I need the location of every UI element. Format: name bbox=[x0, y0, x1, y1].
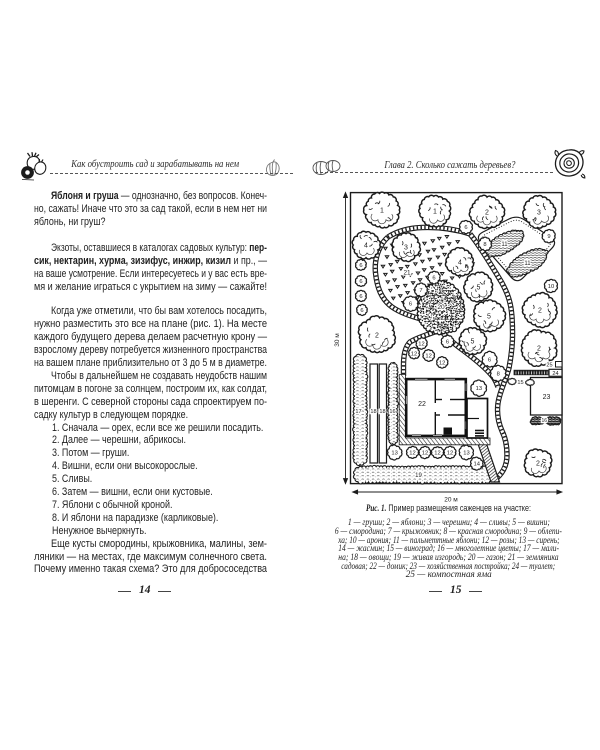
svg-text:6: 6 bbox=[488, 358, 491, 364]
svg-text:6: 6 bbox=[409, 302, 412, 308]
svg-text:12: 12 bbox=[422, 451, 428, 457]
svg-text:4: 4 bbox=[458, 259, 462, 266]
svg-text:8: 8 bbox=[483, 242, 486, 248]
svg-text:23: 23 bbox=[543, 394, 551, 401]
svg-text:1: 1 bbox=[433, 208, 437, 215]
svg-text:16: 16 bbox=[389, 409, 395, 415]
svg-text:15: 15 bbox=[517, 380, 523, 386]
svg-text:6: 6 bbox=[359, 263, 362, 269]
svg-text:12: 12 bbox=[411, 351, 417, 357]
svg-text:12: 12 bbox=[434, 451, 440, 457]
svg-text:16: 16 bbox=[542, 418, 548, 424]
svg-text:2: 2 bbox=[375, 332, 379, 339]
svg-text:12: 12 bbox=[439, 361, 445, 367]
svg-text:6: 6 bbox=[432, 276, 435, 282]
svg-text:6: 6 bbox=[464, 225, 467, 231]
svg-text:2: 2 bbox=[536, 460, 540, 467]
svg-text:7: 7 bbox=[419, 288, 422, 294]
svg-text:30 м: 30 м bbox=[334, 333, 341, 347]
svg-text:3: 3 bbox=[404, 244, 408, 251]
svg-text:13: 13 bbox=[476, 386, 482, 392]
svg-text:13: 13 bbox=[391, 451, 397, 457]
svg-text:12: 12 bbox=[418, 342, 424, 348]
svg-text:19: 19 bbox=[415, 473, 422, 479]
svg-text:6: 6 bbox=[359, 294, 362, 300]
svg-text:18: 18 bbox=[379, 409, 385, 415]
svg-text:24: 24 bbox=[552, 371, 558, 377]
svg-text:18: 18 bbox=[370, 409, 376, 415]
svg-text:22: 22 bbox=[418, 401, 426, 408]
svg-text:13: 13 bbox=[463, 451, 469, 457]
svg-text:8: 8 bbox=[497, 372, 500, 378]
svg-text:3: 3 bbox=[537, 209, 541, 216]
svg-text:6: 6 bbox=[360, 308, 363, 314]
svg-text:11: 11 bbox=[501, 242, 508, 248]
svg-text:2: 2 bbox=[485, 209, 489, 216]
svg-text:21: 21 bbox=[403, 270, 411, 277]
svg-text:6: 6 bbox=[359, 279, 362, 285]
svg-text:12: 12 bbox=[425, 354, 431, 360]
svg-text:2: 2 bbox=[538, 307, 542, 314]
svg-text:9: 9 bbox=[547, 234, 550, 240]
svg-text:12: 12 bbox=[447, 451, 453, 457]
svg-text:5: 5 bbox=[477, 284, 481, 291]
svg-text:14: 14 bbox=[473, 462, 480, 468]
svg-text:10: 10 bbox=[548, 284, 554, 290]
svg-text:25: 25 bbox=[546, 363, 552, 369]
svg-text:5: 5 bbox=[471, 338, 475, 345]
svg-text:20: 20 bbox=[437, 304, 445, 311]
svg-text:11: 11 bbox=[524, 261, 531, 267]
svg-text:4: 4 bbox=[364, 242, 368, 249]
svg-text:1: 1 bbox=[380, 207, 384, 214]
svg-text:6: 6 bbox=[446, 340, 449, 346]
svg-text:17: 17 bbox=[355, 409, 361, 415]
svg-text:12: 12 bbox=[409, 451, 415, 457]
svg-text:2: 2 bbox=[537, 345, 541, 352]
svg-text:5: 5 bbox=[487, 313, 491, 320]
